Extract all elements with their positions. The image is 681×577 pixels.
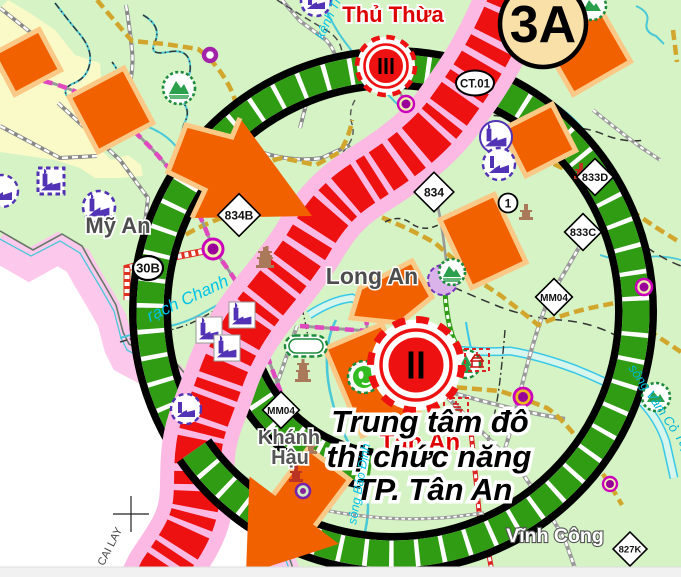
svg-text:Khánh: Khánh — [258, 427, 320, 449]
svg-text:Vĩnh Công: Vĩnh Công — [506, 525, 603, 547]
svg-text:Mỹ An: Mỹ An — [85, 213, 150, 238]
svg-text:Thủ Thừa: Thủ Thừa — [342, 2, 444, 27]
svg-text:827K: 827K — [619, 545, 642, 556]
svg-text:MM04: MM04 — [267, 406, 295, 417]
svg-text:833D: 833D — [582, 172, 608, 184]
svg-text:834: 834 — [424, 186, 444, 200]
svg-text:30B: 30B — [136, 261, 160, 276]
svg-text:1: 1 — [505, 197, 512, 211]
svg-text:834B: 834B — [225, 209, 254, 223]
svg-text:CT.01: CT.01 — [460, 79, 491, 91]
svg-text:Long An: Long An — [326, 263, 418, 289]
svg-text:833C: 833C — [570, 227, 596, 239]
svg-text:MM04: MM04 — [540, 293, 568, 304]
svg-text:Trung tâm đô: Trung tâm đô — [331, 404, 528, 439]
svg-text:Hậu: Hậu — [271, 447, 309, 469]
svg-text:3A: 3A — [510, 0, 576, 54]
svg-text:TP. Tân An: TP. Tân An — [356, 472, 513, 507]
